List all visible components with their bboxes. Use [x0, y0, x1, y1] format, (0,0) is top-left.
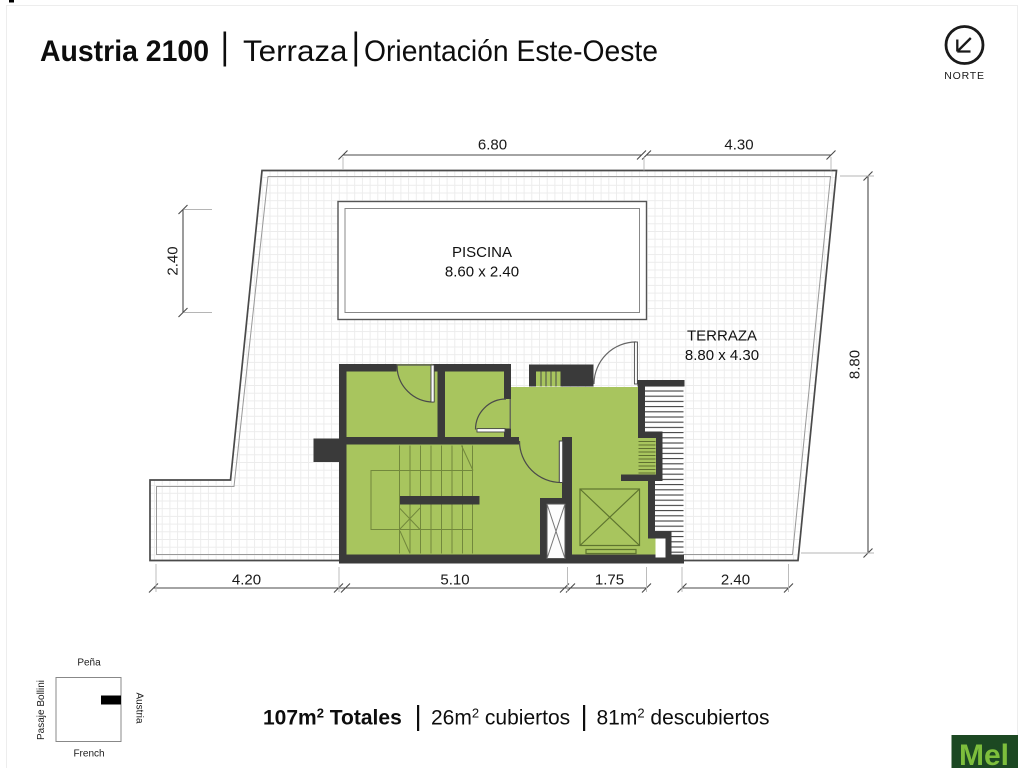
svg-text:1.75: 1.75 — [595, 572, 624, 589]
svg-text:PISCINA: PISCINA — [452, 244, 512, 261]
svg-text:2.40: 2.40 — [721, 572, 750, 589]
svg-text:6.80: 6.80 — [478, 137, 507, 154]
svg-text:81m2 descubiertos: 81m2 descubiertos — [597, 706, 770, 730]
svg-text:Austria: Austria — [134, 692, 145, 724]
svg-text:French: French — [73, 749, 104, 760]
svg-text:Austria 2100: Austria 2100 — [40, 35, 209, 68]
svg-text:8.60 x 2.40: 8.60 x 2.40 — [445, 264, 519, 281]
svg-text:5.10: 5.10 — [440, 572, 469, 589]
svg-text:TERRAZA: TERRAZA — [687, 328, 757, 345]
svg-text:107m2 Totales: 107m2 Totales — [263, 706, 402, 730]
svg-text:Mel: Mel — [959, 739, 1009, 768]
svg-text:26m2 cubiertos: 26m2 cubiertos — [431, 706, 570, 730]
svg-text:4.20: 4.20 — [232, 572, 261, 589]
svg-text:8.80 x 4.30: 8.80 x 4.30 — [685, 347, 759, 364]
svg-text:Pasaje Bollini: Pasaje Bollini — [36, 680, 47, 740]
svg-text:Orientación Este-Oeste: Orientación Este-Oeste — [364, 35, 658, 68]
svg-text:NORTE: NORTE — [944, 70, 985, 82]
svg-text:4.30: 4.30 — [724, 137, 753, 154]
svg-text:Peña: Peña — [77, 658, 101, 669]
svg-text:8.80: 8.80 — [847, 350, 864, 379]
svg-text:Terraza: Terraza — [243, 35, 348, 68]
svg-text:2.40: 2.40 — [165, 246, 182, 275]
